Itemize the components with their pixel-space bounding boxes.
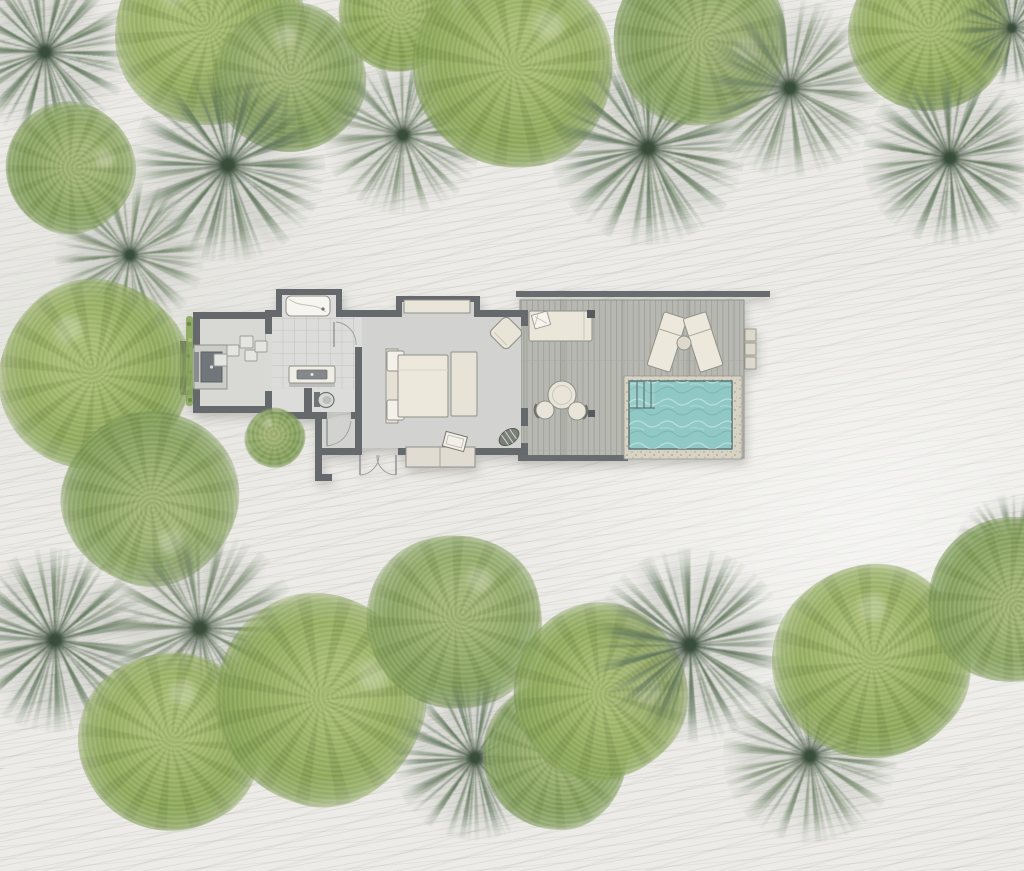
console (406, 447, 475, 467)
deck-side-steps (745, 329, 756, 369)
double-bed (386, 349, 448, 423)
plunge-pool (624, 376, 742, 459)
wardrobe-shelf (404, 300, 470, 313)
wardrobe-niche (396, 296, 480, 317)
toilet (314, 392, 334, 408)
pool-deck (516, 291, 770, 461)
pool-steps (630, 382, 655, 408)
deck-bottom-edge (518, 455, 628, 461)
vanity-sink (289, 366, 335, 387)
toilet-partition (304, 388, 312, 414)
outdoor-shower-courtyard (180, 312, 272, 413)
side-table (677, 336, 691, 350)
outdoor-shower (194, 345, 227, 389)
sliding-glass-door (523, 426, 525, 443)
resort-site-plan: { "scene": { "description": "top-down si… (0, 0, 1024, 768)
mattress (398, 355, 448, 417)
bathtub-niche (276, 289, 342, 317)
foot-bench (451, 352, 477, 416)
villa-floor-plan (0, 0, 1024, 768)
deck-post (588, 410, 595, 417)
bathtub (286, 296, 330, 316)
entry-double-doors (360, 455, 396, 475)
roof-edge-line (516, 291, 770, 297)
sliding-glass-door (523, 326, 525, 408)
daybed (529, 310, 595, 341)
hedge (186, 316, 193, 406)
